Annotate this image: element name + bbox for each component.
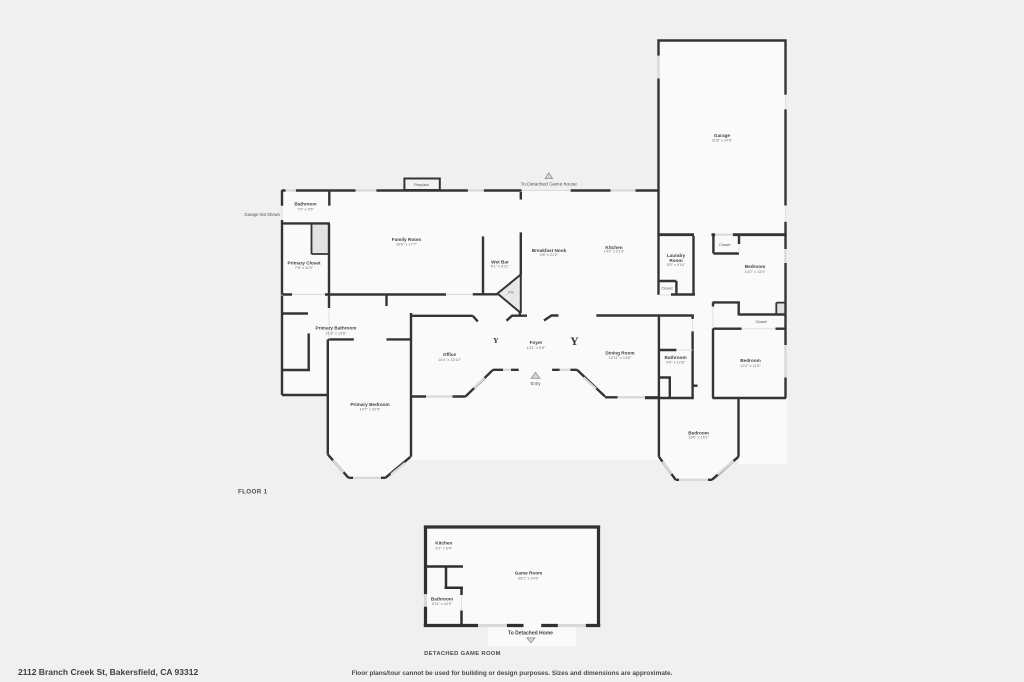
svg-text:Primary Closet: Primary Closet — [287, 261, 321, 266]
svg-text:Bathroom: Bathroom — [665, 355, 687, 360]
svg-text:13'1" x 9'8": 13'1" x 9'8" — [527, 346, 546, 350]
svg-text:26'1" x 14'6": 26'1" x 14'6" — [518, 576, 539, 580]
svg-text:9'6" x 12'8": 9'6" x 12'8" — [666, 361, 685, 365]
svg-text:6'1" x 8'11": 6'1" x 8'11" — [491, 265, 510, 269]
svg-text:9'8" x 21'2": 9'8" x 21'2" — [540, 253, 559, 257]
svg-text:Garage Not Shown: Garage Not Shown — [244, 212, 280, 217]
svg-text:14'4" x 13'10": 14'4" x 13'10" — [438, 358, 462, 362]
svg-text:Fireplace: Fireplace — [414, 183, 429, 187]
svg-text:Dining Room: Dining Room — [605, 350, 634, 355]
svg-text:Closet: Closet — [719, 242, 731, 247]
svg-text:26'5" x 17'7": 26'5" x 17'7" — [396, 242, 417, 246]
svg-text:2112 Branch Creek St, Bakersfi: 2112 Branch Creek St, Bakersfield, CA 93… — [18, 667, 198, 677]
svg-text:To Detached Game house: To Detached Game house — [521, 181, 578, 187]
svg-text:Bedroom: Bedroom — [745, 264, 766, 269]
svg-text:14'7" x 20'5": 14'7" x 20'5" — [360, 408, 381, 412]
svg-text:Foyer: Foyer — [530, 340, 543, 345]
svg-text:To Detached Home: To Detached Home — [508, 631, 553, 637]
svg-text:Fire: Fire — [508, 290, 514, 294]
svg-text:7'8" x 11'9": 7'8" x 11'9" — [295, 266, 314, 270]
svg-text:Y: Y — [570, 336, 579, 348]
svg-text:DETACHED GAME ROOM: DETACHED GAME ROOM — [424, 651, 501, 657]
svg-text:7'0" x 9'5": 7'0" x 9'5" — [297, 208, 314, 212]
svg-text:Bathroom: Bathroom — [294, 202, 316, 207]
svg-text:13'11" x 13'8": 13'11" x 13'8" — [609, 356, 632, 360]
svg-text:10'2" x 13'4": 10'2" x 13'4" — [745, 270, 766, 274]
svg-text:Bedroom: Bedroom — [740, 358, 761, 363]
svg-text:Family Room: Family Room — [392, 237, 421, 242]
svg-text:Floor plans/tour cannot be use: Floor plans/tour cannot be used for buil… — [352, 670, 673, 677]
svg-text:Office: Office — [443, 352, 457, 357]
svg-text:Primary Bathroom: Primary Bathroom — [316, 326, 357, 331]
svg-text:13'6" x 16'1": 13'6" x 16'1" — [688, 435, 709, 439]
svg-text:Game Room: Game Room — [515, 571, 543, 576]
svg-text:Bathroom: Bathroom — [431, 596, 453, 601]
svg-text:5'11" x 10'9": 5'11" x 10'9" — [432, 602, 453, 606]
svg-text:FLOOR 1: FLOOR 1 — [238, 488, 268, 495]
svg-text:Closet: Closet — [661, 286, 673, 291]
svg-text:21'8" x 24'6": 21'8" x 24'6" — [712, 138, 733, 142]
svg-text:Y: Y — [493, 336, 499, 345]
svg-text:Entry: Entry — [530, 381, 541, 386]
svg-text:Garage: Garage — [714, 133, 731, 138]
svg-text:14'2" x 21'3": 14'2" x 21'3" — [604, 250, 625, 254]
svg-text:Closet: Closet — [755, 319, 767, 324]
svg-text:6'1" x 6'4": 6'1" x 6'4" — [435, 546, 452, 550]
svg-text:12'2" x 11'5": 12'2" x 11'5" — [740, 364, 761, 368]
svg-text:Primary Bedroom: Primary Bedroom — [350, 402, 389, 407]
svg-text:21'8" x 13'6": 21'8" x 13'6" — [326, 331, 347, 335]
svg-text:5'5" x 9'10": 5'5" x 9'10" — [667, 263, 686, 267]
svg-text:Kitchen: Kitchen — [435, 541, 452, 546]
